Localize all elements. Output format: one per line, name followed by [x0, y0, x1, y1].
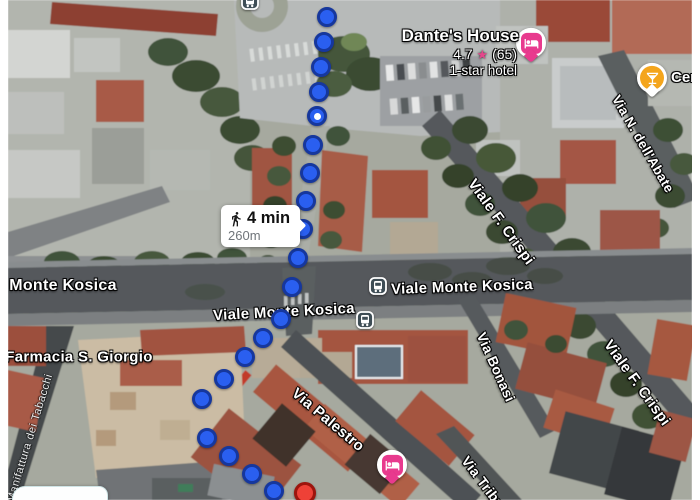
- walking-icon: [228, 211, 244, 227]
- route-dot: [253, 328, 273, 348]
- page-margin-left: [0, 0, 8, 500]
- street-label: Monte Kosica: [9, 277, 117, 295]
- route-dot: [288, 248, 308, 268]
- street-label: Farmacia S. Giorgio: [5, 349, 152, 366]
- street-label: Viale Monte Kosica: [391, 276, 533, 298]
- route-dot: [235, 347, 255, 367]
- route-dot: [192, 389, 212, 409]
- map-viewport: Dante's House 4.7 ★ (65) 1-star hotel 4 …: [0, 0, 700, 500]
- page-margin-right: [692, 0, 700, 500]
- map-canvas[interactable]: Dante's House 4.7 ★ (65) 1-star hotel 4 …: [0, 0, 700, 500]
- review-count: (65): [492, 46, 517, 62]
- route-dot: [214, 369, 234, 389]
- street-label: Via Bonasi: [474, 330, 519, 404]
- route-dot: [242, 464, 262, 484]
- destination-dot: [294, 482, 316, 500]
- poi-name: Dante's House: [0, 26, 519, 46]
- route-dot: [271, 309, 291, 329]
- poi-rating: 4.7 ★ (65): [0, 46, 519, 63]
- route-duration: 4 min: [247, 209, 290, 228]
- transit-stop-icon[interactable]: [369, 277, 387, 295]
- route-dot: [282, 277, 302, 297]
- route-dot: [264, 481, 284, 500]
- cutoff-card: [12, 486, 108, 500]
- street-label: Via N. dell'Abate: [609, 93, 677, 196]
- street-label: Via Palestro: [288, 385, 367, 455]
- route-dot: [197, 428, 217, 448]
- route-dot: [307, 106, 327, 126]
- route-dot: [309, 82, 329, 102]
- route-dot: [219, 446, 239, 466]
- star-icon: ★: [477, 47, 489, 62]
- street-label: Via Tribun: [458, 453, 513, 500]
- route-distance: 260m: [228, 229, 290, 243]
- hotel-marker[interactable]: [516, 28, 546, 61]
- transit-stop-icon[interactable]: [356, 311, 374, 329]
- street-label: Viale F. Crispi: [464, 176, 538, 268]
- street-label: Manifattura dei Tabacchi: [5, 372, 55, 500]
- transit-stop-icon[interactable]: [241, 0, 259, 10]
- route-dot: [300, 163, 320, 183]
- route-dot: [317, 7, 337, 27]
- poi-dantes-house[interactable]: Dante's House 4.7 ★ (65) 1-star hotel: [0, 26, 519, 79]
- hotel-marker[interactable]: [377, 450, 407, 483]
- rating-value: 4.7: [453, 46, 472, 62]
- bar-marker[interactable]: Cer: [637, 63, 667, 96]
- route-dot: [303, 135, 323, 155]
- poi-category: 1-star hotel: [0, 63, 519, 79]
- street-label: Viale F. Crispi: [600, 337, 674, 429]
- route-time-badge[interactable]: 4 min 260m: [221, 205, 300, 247]
